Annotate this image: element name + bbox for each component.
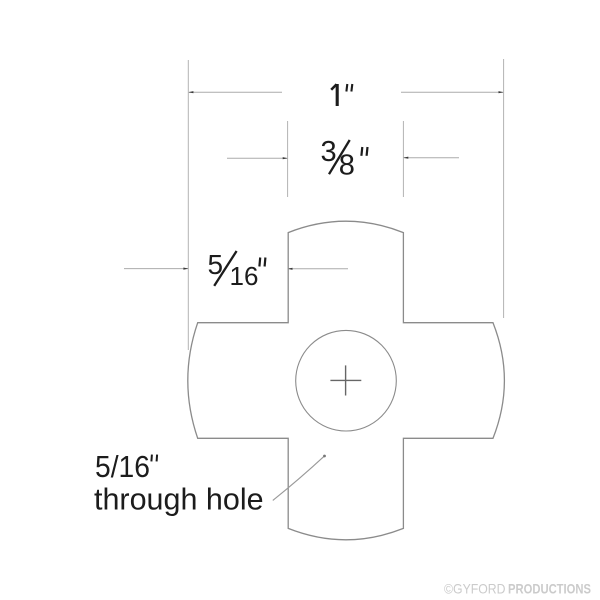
svg-text:3: 3 <box>321 136 337 168</box>
svg-text:PRODUCTIONS: PRODUCTIONS <box>508 581 591 597</box>
svg-text:5/16: 5/16 <box>95 450 150 484</box>
svg-text:8: 8 <box>339 149 355 181</box>
svg-text:through hole: through hole <box>94 483 264 517</box>
svg-text:©GYFORD: ©GYFORD <box>444 581 506 597</box>
svg-text:16: 16 <box>230 261 259 291</box>
